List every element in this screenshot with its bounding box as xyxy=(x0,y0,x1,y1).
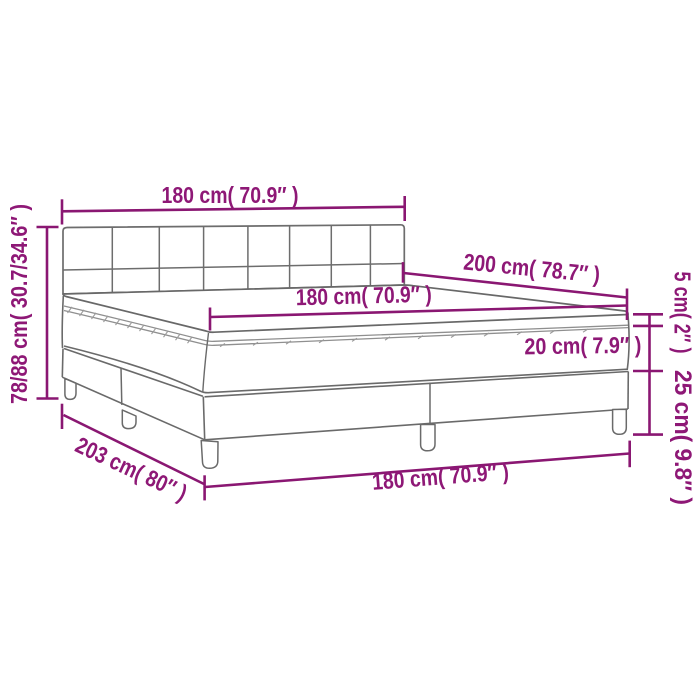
svg-text:180 cm( 70.9″ ): 180 cm( 70.9″ ) xyxy=(162,182,299,208)
svg-text:25 cm( 9.8″ ): 25 cm( 9.8″ ) xyxy=(669,370,696,505)
svg-text:20 cm( 7.9″ ): 20 cm( 7.9″ ) xyxy=(524,332,641,360)
svg-text:5 cm( 2″ ): 5 cm( 2″ ) xyxy=(670,272,696,354)
svg-text:78/88 cm( 30.7/34.6″ ): 78/88 cm( 30.7/34.6″ ) xyxy=(6,204,32,404)
svg-text:180 cm( 70.9″ ): 180 cm( 70.9″ ) xyxy=(295,281,432,311)
